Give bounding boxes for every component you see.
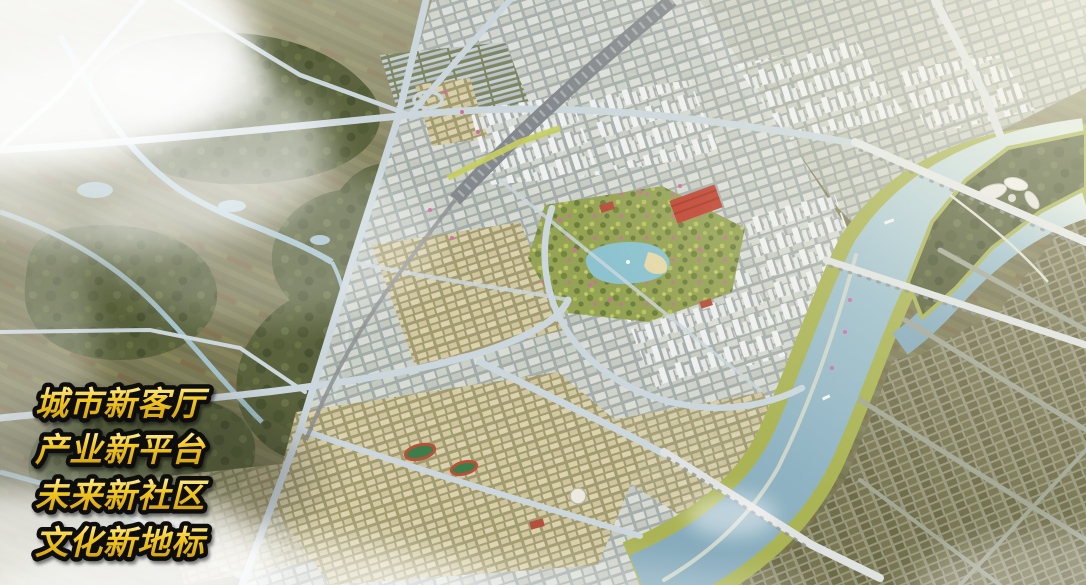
aerial-masterplan-render: 城市新客厅 城市新客厅 产业新平台 产业新平台 未来新社区 未来新社区 文化新地… xyxy=(0,0,1086,585)
scene-canvas: 城市新客厅 城市新客厅 产业新平台 产业新平台 未来新社区 未来新社区 文化新地… xyxy=(0,0,1086,585)
slogan-line-3: 未来新社区 未来新社区 xyxy=(35,477,209,514)
slogan-line-1: 城市新客厅 城市新客厅 xyxy=(35,385,210,422)
slogan-text: 产业新平台 xyxy=(35,431,206,468)
slogan-text: 城市新客厅 xyxy=(35,385,210,422)
slogan-line-2: 产业新平台 产业新平台 xyxy=(35,431,206,468)
slogan-line-4: 文化新地标 文化新地标 xyxy=(35,524,208,561)
slogan-text: 未来新社区 xyxy=(35,477,209,514)
slogan-text: 文化新地标 xyxy=(35,524,208,561)
